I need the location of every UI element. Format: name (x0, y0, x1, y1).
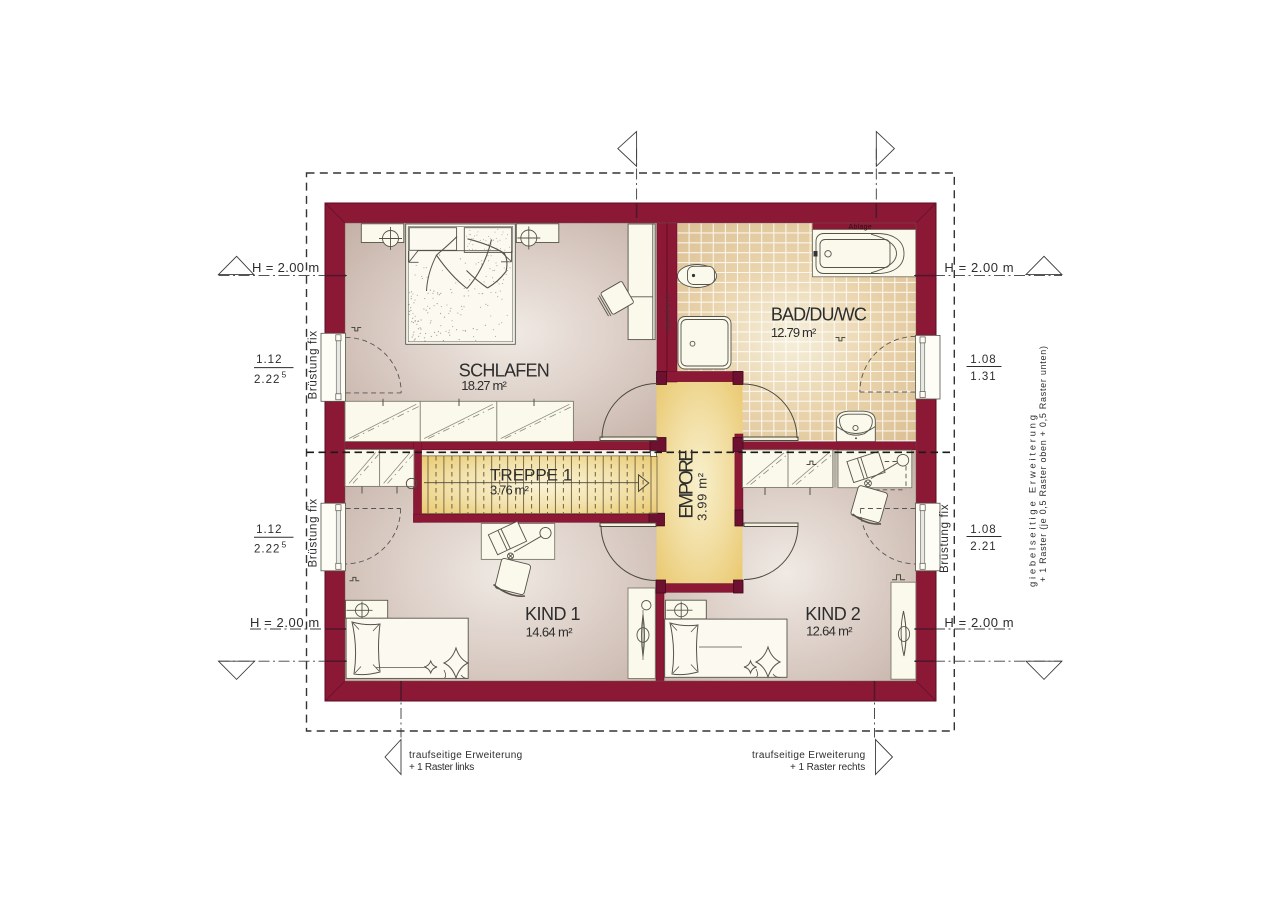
svg-text:12.64 m²: 12.64 m² (806, 623, 853, 638)
svg-text:1.31: 1.31 (970, 371, 996, 383)
svg-text:1.08: 1.08 (970, 524, 996, 536)
svg-text:2.22: 2.22 (254, 544, 280, 556)
svg-text:H = 2.00 m: H = 2.00 m (250, 615, 320, 630)
svg-text:KIND 1: KIND 1 (525, 604, 582, 624)
svg-text:12.79 m²: 12.79 m² (771, 325, 817, 340)
svg-text:3.99 m²: 3.99 m² (694, 472, 709, 521)
svg-text:2.21: 2.21 (970, 541, 996, 553)
svg-text:+ 1 Raster rechts: + 1 Raster rechts (790, 762, 866, 773)
svg-text:+ 1 Raster (je 0,5 Raster oben: + 1 Raster (je 0,5 Raster oben + 0,5 Ras… (1038, 346, 1048, 582)
svg-text:H = 2.00 m: H = 2.00 m (252, 260, 320, 275)
svg-text:1.08: 1.08 (970, 354, 996, 366)
svg-text:1.12: 1.12 (256, 354, 282, 366)
svg-text:Ablage: Ablage (849, 224, 873, 231)
svg-text:BAD/DU/WC: BAD/DU/WC (771, 304, 868, 324)
svg-text:KIND 2: KIND 2 (805, 604, 862, 624)
svg-text:5: 5 (282, 370, 287, 380)
svg-text:traufseitige Erweiterung: traufseitige Erweiterung (409, 750, 523, 761)
svg-text:5: 5 (282, 539, 287, 549)
svg-text:Brüstung fix: Brüstung fix (308, 331, 320, 400)
svg-text:giebelseitige Erweiterung: giebelseitige Erweiterung (1028, 415, 1039, 587)
svg-text:traufseitige Erweiterung: traufseitige Erweiterung (752, 750, 866, 761)
svg-text:1.12: 1.12 (256, 524, 282, 536)
svg-text:18.27 m²: 18.27 m² (461, 378, 507, 393)
svg-text:+ 1 Raster links: + 1 Raster links (409, 762, 475, 773)
svg-text:3.76 m²: 3.76 m² (490, 483, 530, 498)
svg-text:Brüstung fix: Brüstung fix (939, 504, 951, 573)
svg-text:Brüstung fix: Brüstung fix (308, 499, 320, 568)
svg-text:H = 2.00 m: H = 2.00 m (944, 615, 1014, 630)
svg-text:TREPPE 1: TREPPE 1 (490, 466, 574, 485)
svg-text:raumhoch: raumhoch (665, 294, 672, 332)
svg-text:2.22: 2.22 (254, 374, 280, 386)
svg-text:14.64 m²: 14.64 m² (526, 624, 574, 639)
svg-text:H = 2.00 m: H = 2.00 m (944, 260, 1014, 275)
